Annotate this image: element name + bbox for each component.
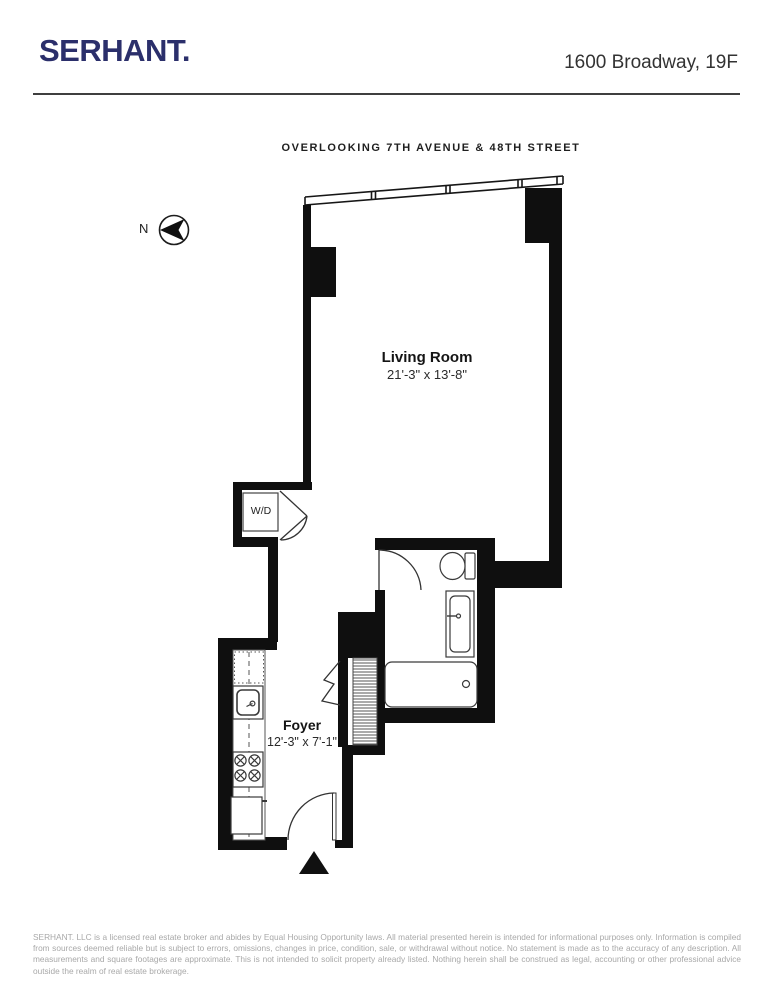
- wall-corridor-left: [268, 547, 278, 642]
- header-divider: [33, 93, 740, 95]
- wd-closet-door: [280, 491, 307, 540]
- legal-disclaimer: SERHANT. LLC is a licensed real estate b…: [33, 932, 741, 977]
- wall-right: [549, 243, 562, 588]
- wall-bath-top: [375, 538, 493, 550]
- entry-door: [288, 793, 336, 840]
- living-room-label: Living Room: [382, 349, 473, 366]
- bathtub-icon: [385, 662, 477, 707]
- bathroom-door: [379, 550, 421, 590]
- listing-address: 1600 Broadway, 19F: [564, 52, 738, 74]
- foyer-dimensions: 12'-3" x 7'-1": [267, 735, 337, 749]
- wall-bath-right: [477, 538, 495, 723]
- wall-left-column: [311, 247, 336, 297]
- foyer-label: Foyer: [283, 717, 321, 733]
- serhant-logo: SERHANT.: [39, 33, 190, 69]
- wall-top-right-column: [525, 188, 562, 243]
- bathroom-sink-icon: [446, 591, 474, 657]
- wall-foyer-right: [342, 755, 353, 847]
- wall-left: [303, 205, 311, 490]
- window-band: [305, 176, 563, 205]
- kitchen-sink-icon: [233, 686, 263, 719]
- refrigerator-icon: [231, 797, 267, 834]
- wall-bath-bottom: [377, 708, 495, 723]
- foyer-closet: [353, 658, 377, 745]
- floorplan-page: { "header": { "brand": "SERHANT.", "addr…: [0, 0, 773, 1000]
- toilet-icon: [440, 553, 475, 580]
- orientation-note: OVERLOOKING 7TH AVENUE & 48TH STREET: [281, 142, 580, 154]
- entry-arrow-icon: [299, 851, 329, 874]
- closet-accordion-door: [322, 661, 340, 705]
- wall-bath-left-lower: [375, 590, 385, 658]
- north-compass-icon: [160, 216, 189, 245]
- north-label: N: [139, 221, 148, 236]
- wall-wd-bottom: [233, 537, 278, 547]
- wall-closet-right: [377, 658, 385, 755]
- living-room-dimensions: 21'-3" x 13'-8": [387, 367, 467, 382]
- washer-dryer-label: W/D: [251, 505, 271, 517]
- stove-icon: [233, 752, 263, 787]
- wall-wd-top: [233, 482, 312, 490]
- wall-closet-left: [338, 650, 348, 747]
